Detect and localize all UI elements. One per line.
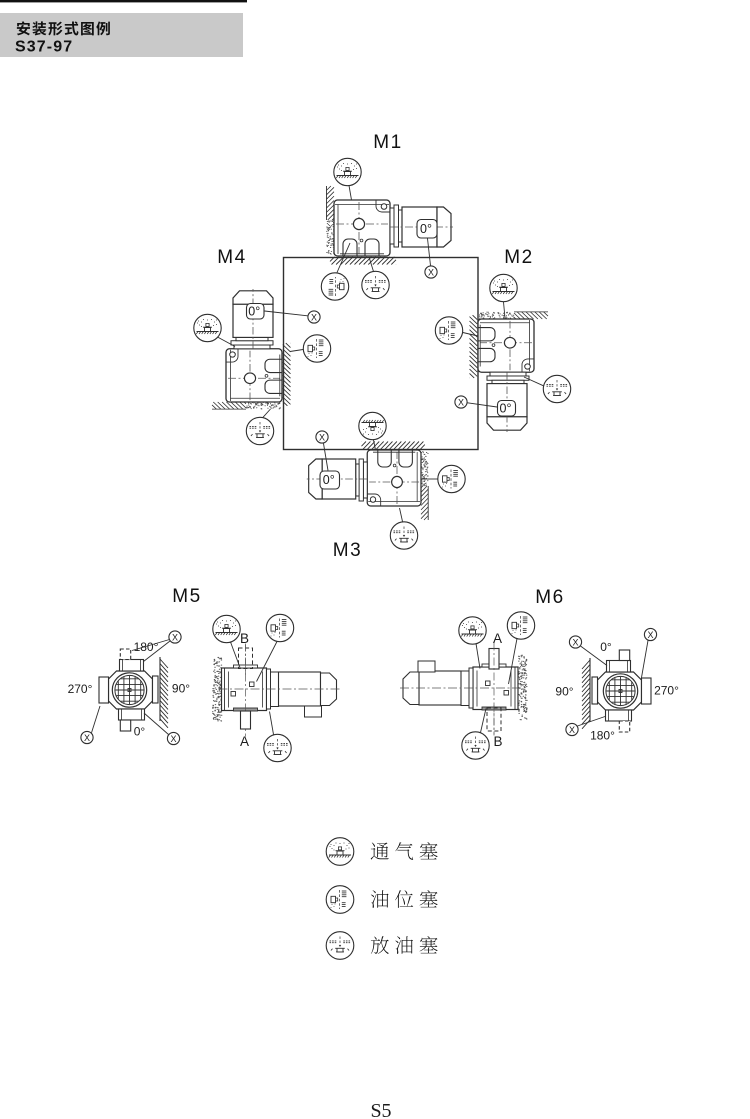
svg-text:M2: M2 [504,247,533,268]
svg-text:X: X [319,432,325,442]
svg-text:X: X [572,637,578,647]
svg-text:M5: M5 [172,586,201,607]
svg-text:M4: M4 [217,247,246,268]
svg-text:X: X [569,725,575,735]
svg-text:X: X [311,312,317,322]
svg-text:180°: 180° [134,640,159,654]
svg-text:X: X [458,397,464,407]
svg-text:M1: M1 [373,132,402,153]
svg-text:270°: 270° [654,684,679,698]
svg-text:X: X [84,733,90,743]
svg-text:0°: 0° [248,304,260,318]
svg-text:S37-97: S37-97 [15,39,73,56]
svg-text:X: X [428,267,434,277]
svg-text:0°: 0° [323,473,335,487]
svg-text:A: A [240,734,249,749]
svg-text:A: A [493,631,502,646]
svg-text:0°: 0° [134,725,146,739]
svg-text:X: X [170,734,176,744]
svg-text:S5: S5 [370,1100,391,1119]
svg-text:0°: 0° [600,640,612,654]
svg-text:X: X [172,632,178,642]
svg-text:B: B [240,631,249,646]
svg-text:90°: 90° [555,685,573,699]
svg-text:0°: 0° [420,222,432,236]
svg-text:90°: 90° [172,682,190,696]
svg-text:180°: 180° [590,729,615,743]
svg-text:B: B [493,734,502,749]
svg-text:0°: 0° [500,401,512,415]
svg-text:270°: 270° [68,682,93,696]
svg-text:M6: M6 [535,587,564,608]
svg-text:X: X [647,630,653,640]
svg-text:M3: M3 [333,540,362,561]
